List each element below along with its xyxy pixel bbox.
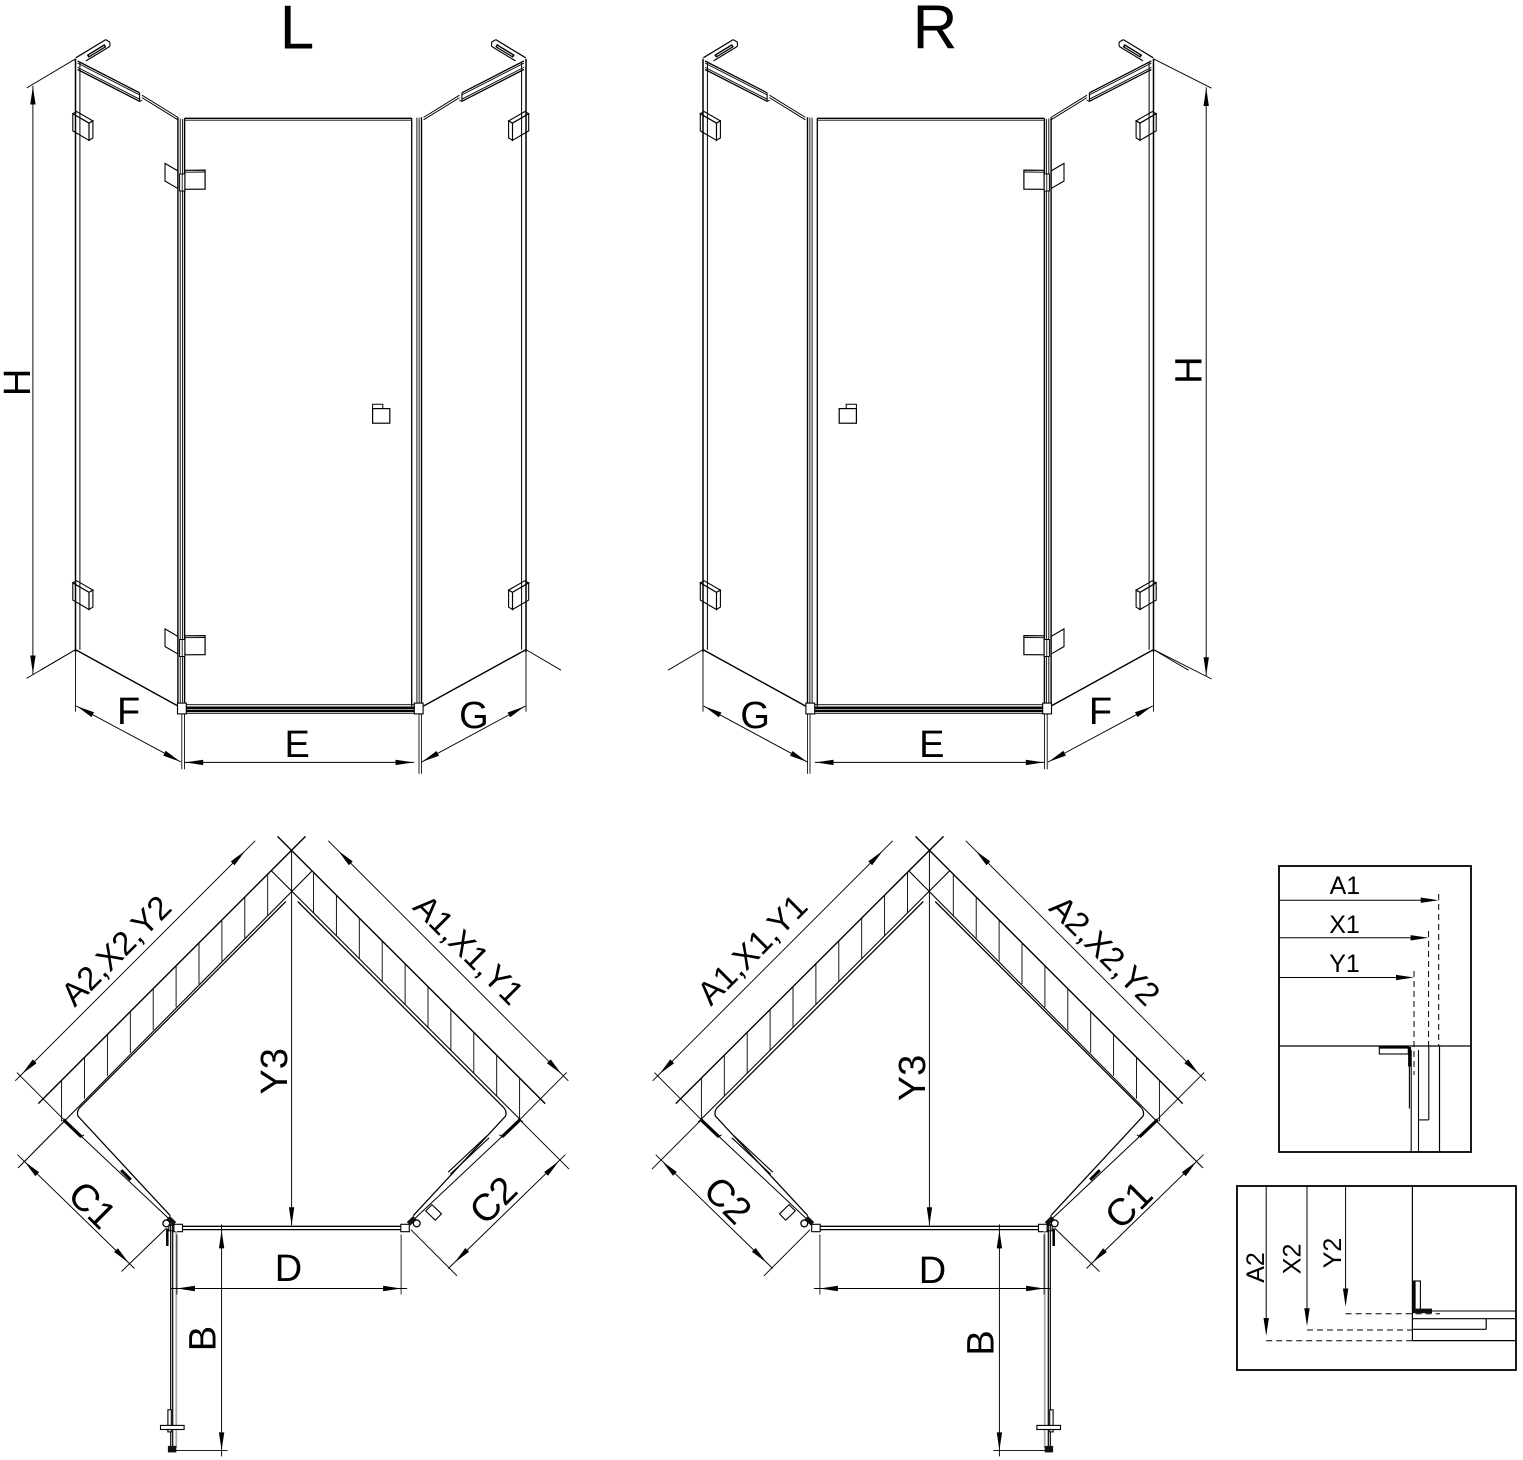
svg-text:R: R xyxy=(913,0,958,63)
svg-text:H: H xyxy=(0,369,39,396)
svg-text:G: G xyxy=(459,695,489,737)
svg-text:D: D xyxy=(919,1250,946,1292)
svg-text:X2: X2 xyxy=(1279,1244,1307,1275)
svg-text:L: L xyxy=(280,0,314,63)
svg-text:D: D xyxy=(275,1248,302,1290)
svg-text:B: B xyxy=(961,1330,1003,1355)
svg-text:Y1: Y1 xyxy=(1329,950,1360,978)
svg-text:F: F xyxy=(117,691,140,733)
svg-text:A1: A1 xyxy=(1330,872,1361,900)
svg-text:Y3: Y3 xyxy=(892,1055,934,1101)
svg-text:A2: A2 xyxy=(1242,1252,1270,1283)
svg-text:E: E xyxy=(285,724,310,766)
svg-text:G: G xyxy=(740,695,770,737)
svg-text:Y3: Y3 xyxy=(254,1048,296,1094)
svg-text:X1: X1 xyxy=(1329,911,1360,939)
svg-text:F: F xyxy=(1089,691,1112,733)
svg-text:Y2: Y2 xyxy=(1319,1238,1347,1269)
svg-text:E: E xyxy=(919,724,944,766)
svg-text:B: B xyxy=(183,1326,225,1351)
svg-text:H: H xyxy=(1168,356,1210,383)
